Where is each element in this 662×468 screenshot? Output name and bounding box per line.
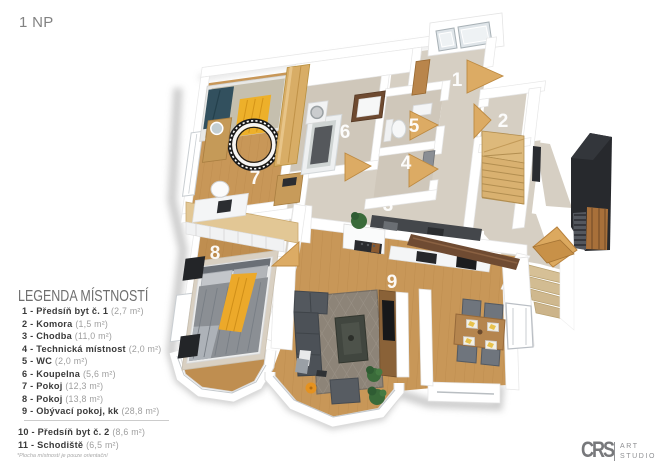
svg-text:4: 4 <box>401 153 412 174</box>
svg-text:8: 8 <box>210 243 221 264</box>
svg-text:7: 7 <box>250 168 261 189</box>
svg-text:5: 5 <box>409 116 420 137</box>
svg-text:1: 1 <box>452 70 463 91</box>
svg-text:9: 9 <box>387 272 398 293</box>
svg-text:2: 2 <box>498 111 509 132</box>
svg-text:3: 3 <box>383 195 394 216</box>
svg-text:6: 6 <box>340 122 351 143</box>
